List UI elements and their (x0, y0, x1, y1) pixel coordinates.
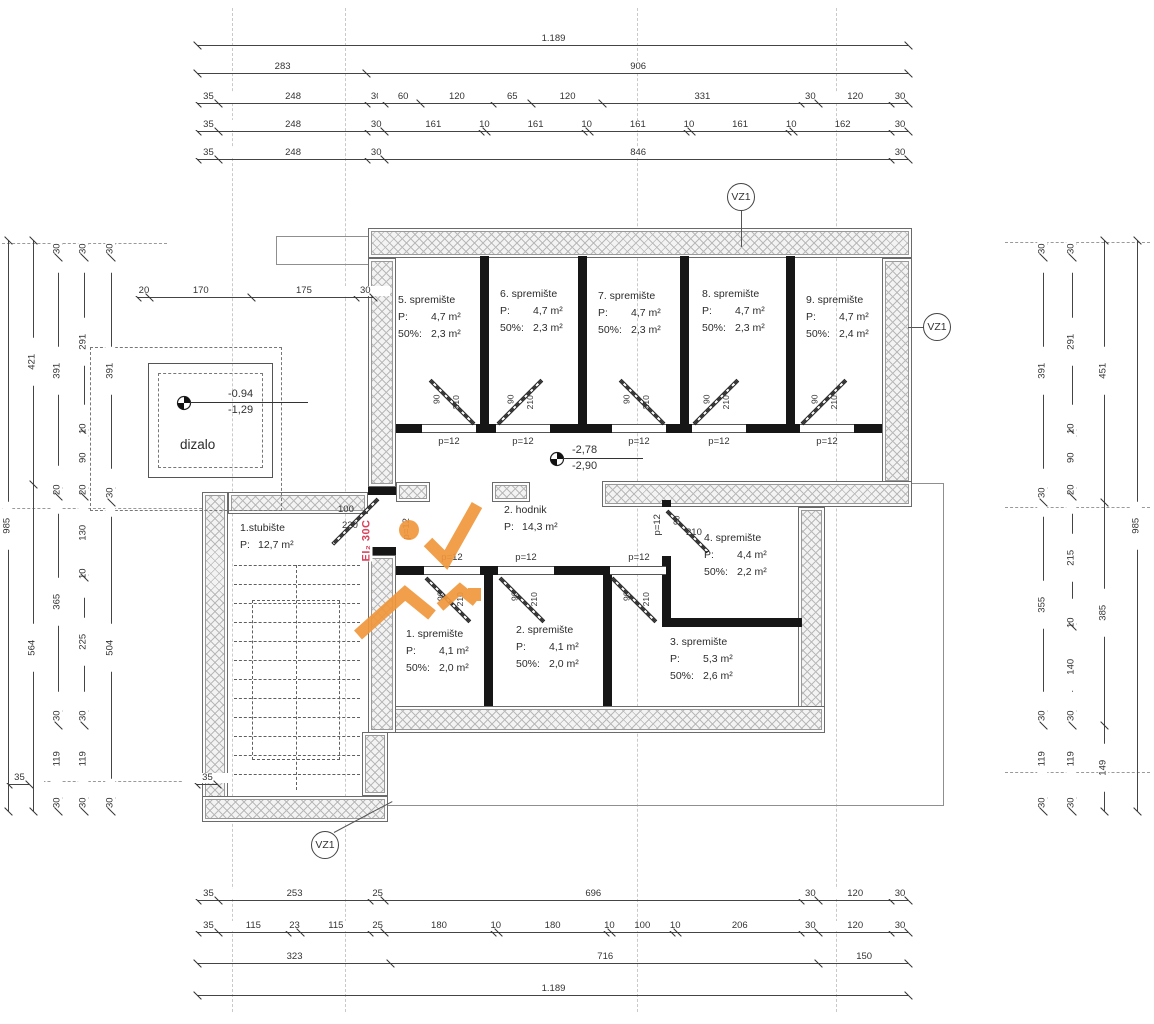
dim-label: 30 (1037, 778, 1047, 826)
elevation-marker-icon (176, 395, 192, 411)
dim-label: 161 (715, 120, 765, 130)
dim-label: 248 (268, 120, 318, 130)
dim-label: 30 (1037, 469, 1047, 517)
vent-leader (908, 327, 924, 328)
partition-r8-r9 (786, 256, 795, 426)
dim-label: 120 (830, 92, 880, 102)
dim-label: 30 (351, 120, 401, 130)
door-opening-r2 (498, 566, 554, 575)
dim-label (196, 784, 217, 785)
dim-label: 248 (268, 148, 318, 158)
door-width-label: 90 (702, 395, 711, 404)
dim-label: 25 (353, 889, 403, 899)
door-opening-r5 (422, 424, 476, 433)
stair-walk-line (296, 565, 297, 790)
dim-label: 170 (176, 286, 226, 296)
door-height-label: 210 (452, 395, 461, 409)
dim-label: 30 (78, 224, 88, 272)
dim-label: 30 (1066, 692, 1076, 740)
dim-label: 291 (78, 318, 88, 366)
dim-label: 30 (1066, 224, 1076, 272)
dim-label: 30 (105, 224, 115, 272)
partition-r6-r7 (578, 256, 587, 426)
dim-label: 30 (351, 148, 401, 158)
dim-label (197, 995, 908, 996)
door-leaf-r8 (693, 379, 740, 426)
dim-label: 35 (183, 148, 233, 158)
door-height-label: 210 (530, 592, 539, 606)
dim-label: 906 (613, 62, 663, 72)
dim-label (197, 131, 908, 132)
vent-tag-bottom: VZ1 (311, 831, 339, 859)
dim-label: 35 (183, 889, 233, 899)
exterior-wall-right-upper (882, 258, 912, 484)
dim-label: 355 (1037, 580, 1047, 628)
dim-label: 30 (875, 92, 925, 102)
canopy-outline (276, 236, 368, 237)
ref-line (1005, 507, 1150, 508)
door-height-label: 210 (526, 395, 535, 409)
floor-plan-canvas: 90 210 90 210 90 210 90 210 90 210 90 21… (0, 0, 1154, 1024)
dim-label: 716 (580, 952, 630, 962)
door-width-label: 90 (672, 516, 681, 525)
dim-label: 120 (432, 92, 482, 102)
door-width-label: 90 (510, 592, 519, 601)
door-opening-r8 (692, 424, 746, 433)
dim-label: 30 (78, 778, 88, 826)
elevation-upper: -0.94 (228, 389, 253, 400)
dim-label: 35 (182, 773, 232, 783)
dim-label: 30 (105, 469, 115, 517)
elevation-lower: -1,29 (228, 405, 253, 416)
dim-label: 119 (1037, 735, 1047, 783)
door-opening-r7 (612, 424, 666, 433)
dim-label: 30 (52, 778, 62, 826)
dim-label: 391 (52, 347, 62, 395)
dim-label: 365 (52, 577, 62, 625)
dim-label: 119 (78, 735, 88, 783)
dim-label: 331 (677, 92, 727, 102)
dim-label: 120 (830, 889, 880, 899)
dim-label: 25 (353, 921, 403, 931)
room-5-spremiste: 5. spremište P:4,7 m² 50%:2,3 m² (398, 292, 461, 343)
door-height-label: 210 (642, 395, 651, 409)
door-height-label: 210 (642, 592, 651, 606)
dim-label: 30 (785, 889, 835, 899)
dim-label: 385 (1098, 589, 1108, 637)
dim-label: 206 (715, 921, 765, 931)
sill-label: p=12 (624, 553, 654, 563)
dim-label (33, 240, 34, 811)
dim-label: 30 (785, 92, 835, 102)
exterior-wall-bottom-lower (388, 706, 825, 733)
door-width-label: 90 (810, 395, 819, 404)
dim-label: 149 (1098, 744, 1108, 792)
partition-r5-r6 (480, 256, 489, 426)
elevation-lower: -2,90 (572, 461, 597, 472)
dim-label: 35 (183, 92, 233, 102)
dim-label: 564 (27, 623, 37, 671)
partition-r2-r3 (603, 575, 612, 706)
sill-label: p=12 (624, 437, 654, 447)
door-width-label: 90 (622, 592, 631, 601)
door-height-label: 210 (722, 395, 731, 409)
door-height-label: 210 (686, 528, 702, 538)
dim-label: 30 (1037, 692, 1047, 740)
dim-label: 421 (27, 338, 37, 386)
door-leaf-r9 (801, 379, 848, 426)
dim-label: 175 (279, 286, 329, 296)
dim-label: 696 (568, 889, 618, 899)
dim-label: 30 (52, 224, 62, 272)
room-7-spremiste: 7. spremište P:4,7 m² 50%:2,3 m² (598, 288, 661, 339)
dim-label: 225 (78, 618, 88, 666)
upper-floor-outline (388, 805, 944, 806)
stair-tread (234, 774, 360, 775)
dim-label (197, 45, 908, 46)
dim-label: 985 (1131, 501, 1141, 549)
dim-label: 1.189 (529, 984, 579, 994)
door-opening-r6 (496, 424, 550, 433)
dim-label (137, 297, 373, 298)
ref-line (1005, 242, 1150, 243)
dim-label: 504 (105, 623, 115, 671)
room-4-spremiste: 4. spremište P:4,4 m² 50%:2,2 m² (704, 530, 767, 581)
dim-label: 180 (414, 921, 464, 931)
sill-label: p=12 (508, 437, 538, 447)
dim-label: 846 (613, 148, 663, 158)
dim-label: 20 (78, 466, 88, 514)
dim-label: 30 (78, 692, 88, 740)
partition-r4-bottom (662, 618, 802, 627)
dim-label: 30 (340, 286, 390, 296)
dim-label: 161 (613, 120, 663, 130)
door-width-label: 90 (506, 395, 515, 404)
ref-line (1005, 772, 1150, 773)
dim-label: 30 (52, 692, 62, 740)
canopy-outline (276, 264, 368, 265)
dim-label: 30 (1066, 778, 1076, 826)
dim-label: 391 (1037, 347, 1047, 395)
dim-label: 161 (511, 120, 561, 130)
vent-tag-top: VZ1 (727, 183, 755, 211)
dim-label: 162 (818, 120, 868, 130)
dim-label: 985 (2, 501, 12, 549)
dim-label (197, 963, 908, 964)
dim-label (197, 73, 908, 74)
vent-leader (741, 211, 742, 247)
partition-r4-left-jamb (662, 500, 671, 507)
dim-label: 120 (830, 921, 880, 931)
dim-label: 180 (528, 921, 578, 931)
elevation-marker-icon (549, 451, 565, 467)
room-8-spremiste: 8. spremište P:4,7 m² 50%:2,3 m² (702, 286, 765, 337)
dim-label: 283 (258, 62, 308, 72)
dim-label: 35 (183, 120, 233, 130)
canopy-outline (276, 236, 277, 264)
partition-r7-r8 (680, 256, 689, 426)
door-height-label: 210 (830, 395, 839, 409)
dim-label: 30 (875, 120, 925, 130)
sill-label: p=12 (653, 514, 663, 535)
dim-label: 120 (543, 92, 593, 102)
upper-floor-outline (943, 483, 944, 805)
dim-label: 451 (1098, 347, 1108, 395)
door-opening-r3 (610, 566, 666, 575)
elevation-line (563, 458, 643, 459)
exterior-wall-top (368, 228, 912, 258)
dim-label: 30 (875, 148, 925, 158)
dim-label: 1.189 (529, 34, 579, 44)
room-hodnik: 2. hodnik P:14,3 m² (504, 502, 558, 536)
elevator-label: dizalo (180, 437, 215, 452)
dim-label: 20 (119, 286, 169, 296)
dim-label: 161 (408, 120, 458, 130)
dim-label (8, 784, 29, 785)
door-opening-r9 (800, 424, 854, 433)
elevation-line (190, 402, 308, 403)
door-leaf-r6 (497, 379, 544, 426)
dim-label: 60 (378, 92, 428, 102)
dim-label: 35 (0, 773, 44, 783)
dim-label: 323 (270, 952, 320, 962)
dim-label: 215 (1066, 534, 1076, 582)
room-3-spremiste: 3. spremište P:5,3 m² 50%:2,6 m² (670, 634, 733, 685)
sill-label: p=12 (812, 437, 842, 447)
vent-tag-right: VZ1 (923, 313, 951, 341)
sill-label: p=12 (434, 437, 464, 447)
door-width-label: 90 (622, 395, 631, 404)
dim-label: 253 (270, 889, 320, 899)
dim-label: 35 (183, 921, 233, 931)
dim-label: 20 (52, 466, 62, 514)
dim-label: 119 (52, 735, 62, 783)
sill-label: p=12 (704, 437, 734, 447)
door-width-label: 90 (432, 395, 441, 404)
dim-label: 30 (1037, 224, 1047, 272)
dim-label: 30 (875, 921, 925, 931)
dim-label: 291 (1066, 318, 1076, 366)
dim-label (111, 240, 112, 811)
dim-label: 140 (1066, 643, 1076, 691)
dim-label: 30 (875, 889, 925, 899)
exterior-wall-right-lower (798, 507, 825, 733)
dim-label: 30 (785, 921, 835, 931)
sill-label: p=12 (511, 553, 541, 563)
room-6-spremiste: 6. spremište P:4,7 m² 50%:2,3 m² (500, 286, 563, 337)
exterior-wall-mid-right (602, 481, 912, 507)
room-9-spremiste: 9. spremište P:4,7 m² 50%:2,4 m² (806, 292, 869, 343)
room-2-spremiste: 2. spremište P:4,1 m² 50%:2,0 m² (516, 622, 579, 673)
watermark-logo (340, 490, 500, 650)
dim-label: 391 (105, 347, 115, 395)
stair-wall-step (362, 732, 388, 796)
dim-label: 20 (1066, 466, 1076, 514)
room-stubiste: 1.stubište P:12,7 m² (240, 520, 294, 554)
dim-label: 119 (1066, 735, 1076, 783)
dim-label: 150 (839, 952, 889, 962)
dim-label: 30 (105, 778, 115, 826)
dim-label: 248 (268, 92, 318, 102)
elevation-upper: -2,78 (572, 445, 597, 456)
dim-label (197, 159, 908, 160)
